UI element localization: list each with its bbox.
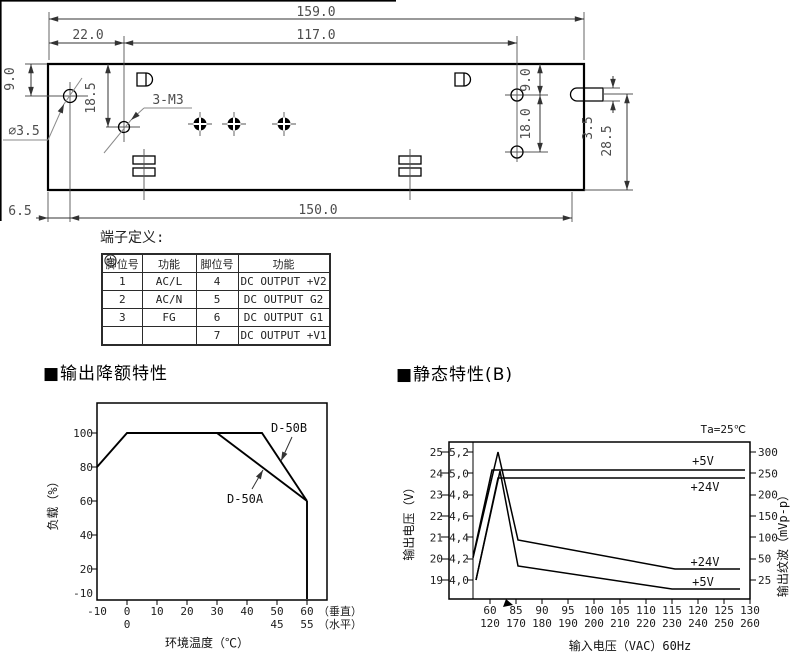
terminal-table: 脚位号 功能 脚位号 功能 1 AC/L 4 DC OUTPUT +V2 2 A… xyxy=(101,253,331,346)
tick-label: 115 xyxy=(662,604,682,617)
pin-number xyxy=(102,327,142,346)
static-x-row1-labels: 60859095100105110115120125130 xyxy=(483,604,760,617)
tick-label: 120 xyxy=(480,617,500,630)
pin-function: FG xyxy=(142,309,196,327)
tick-label: 60 xyxy=(80,495,93,508)
derating-y-tick-labels: 10080604020 xyxy=(73,427,93,576)
table-row: 7 DC OUTPUT +V1 xyxy=(102,327,330,346)
tick-label: 50 xyxy=(758,553,771,566)
x2-under-60: 55 xyxy=(300,618,313,631)
tick-label: 5,0 xyxy=(449,467,469,480)
pin-mark xyxy=(188,112,212,136)
pin-number: 6 xyxy=(196,309,238,327)
derating-axis-ticks xyxy=(91,433,307,605)
col-header: 功能 xyxy=(238,254,330,273)
tick-label: 260 xyxy=(740,617,760,630)
pin-number: 3 xyxy=(102,309,142,327)
tick-label: 50 xyxy=(270,605,283,618)
tick-label: 4,4 xyxy=(449,531,469,544)
tick-label: 85 xyxy=(509,604,522,617)
label-ripple-24v: +24V xyxy=(691,555,720,569)
tick-label: 5,2 xyxy=(449,446,469,459)
tick-label: 4,0 xyxy=(449,574,469,587)
vent-slots-left xyxy=(133,149,155,200)
knockout-right xyxy=(455,73,471,86)
vertical-mount-label: （垂直） xyxy=(318,604,362,618)
pin-function xyxy=(142,327,196,346)
tick-label: 4,8 xyxy=(449,489,469,502)
tick-label: 0 xyxy=(124,605,131,618)
derating-ylabel: 负载（%） xyxy=(46,475,60,530)
label-voltage-5v: +5V xyxy=(692,454,714,468)
tick-label: 110 xyxy=(636,604,656,617)
tick-label: 230 xyxy=(662,617,682,630)
tick-label: 60 xyxy=(300,605,313,618)
label-voltage-24v: +24V xyxy=(691,480,720,494)
static-ylabel-left: 输出电压（V） xyxy=(401,481,416,560)
tick-label: 40 xyxy=(80,529,93,542)
static-y-ripple-labels: 3002502001501005025 xyxy=(758,446,778,587)
table-header-row: 脚位号 功能 脚位号 功能 xyxy=(102,254,330,273)
pin-mark xyxy=(272,112,296,136)
dimension-labels: 159.0 22.0 117.0 9.0 18.5 ∅3.5 3-M3 9.0 … xyxy=(3,5,615,219)
mounting-hole-left xyxy=(25,82,88,222)
tick-label: 130 xyxy=(740,604,760,617)
col-header: 功能 xyxy=(142,254,196,273)
tick-label: 105 xyxy=(610,604,630,617)
dim-m3-from-top: 18.5 xyxy=(84,82,99,113)
tick-label: 24 xyxy=(430,467,444,480)
tick-label: 25 xyxy=(430,446,443,459)
pin-number: 7 xyxy=(196,327,238,346)
static-ylabel-right: 输出纹波（mVp-p） xyxy=(775,489,790,597)
tick-label: 19 xyxy=(430,574,443,587)
ambient-temp-note: Ta=25℃ xyxy=(701,423,746,436)
mounting-tab xyxy=(571,88,604,101)
table-row: 3 FG 6 DC OUTPUT G1 xyxy=(102,309,330,327)
static-y-voltage24-labels: 25242322212019 xyxy=(430,446,444,587)
tick-label: 300 xyxy=(758,446,778,459)
pin-number: 1 xyxy=(102,273,142,291)
tick-label: 20 xyxy=(180,605,193,618)
pin-number: 2 xyxy=(102,291,142,309)
dim-right-hole-from-top: 9.0 xyxy=(519,68,534,91)
tick-label: 20 xyxy=(430,553,443,566)
dim-m3-callout: 3-M3 xyxy=(152,93,183,108)
static-y-voltage5-labels: 5,25,04,84,64,44,24,0 xyxy=(449,446,469,587)
tick-label: 100 xyxy=(73,427,93,440)
pin-function: DC OUTPUT +V2 xyxy=(238,273,330,291)
tick-label: 21 xyxy=(430,531,443,544)
tick-label: 250 xyxy=(714,617,734,630)
pin-number: 5 xyxy=(196,291,238,309)
curve-label-d50a: D-50A xyxy=(227,492,264,506)
x2-under-0: 0 xyxy=(124,618,131,631)
derating-x-tick-labels: -100102030405060 xyxy=(87,605,314,618)
tick-label: 120 xyxy=(688,604,708,617)
section-title-derating: ■输出降额特性 xyxy=(43,359,168,384)
pin-function: AC/L xyxy=(142,273,196,291)
static-chart: +5V +24V +24V +5V 25242322212019 5,25,04… xyxy=(401,423,790,653)
tick-label: 240 xyxy=(688,617,708,630)
table-row: 1 AC/L 4 DC OUTPUT +V2 xyxy=(102,273,330,291)
dim-tab-to-bottom: 28.5 xyxy=(600,125,615,156)
x2-under-50: 45 xyxy=(270,618,283,631)
dim-tab-thickness: 3.5 xyxy=(581,116,596,139)
tick-label: 4,2 xyxy=(449,553,469,566)
m3-hole xyxy=(106,36,140,142)
tick-label: 125 xyxy=(714,604,734,617)
datasheet-page: 159.0 22.0 117.0 9.0 18.5 ∅3.5 3-M3 9.0 … xyxy=(0,0,802,659)
tick-label: 150 xyxy=(758,510,778,523)
tick-label: 180 xyxy=(532,617,552,630)
tick-label: 30 xyxy=(210,605,223,618)
dim-total-width: 159.0 xyxy=(296,5,335,20)
pin-mark xyxy=(222,112,246,136)
d50a-leader-arrow xyxy=(252,470,263,489)
curve-label-d50b: D-50B xyxy=(271,421,307,435)
section-title-static: ■静态特性(B) xyxy=(396,360,513,385)
d50b-leader-arrow xyxy=(281,437,292,461)
static-xlabel: 输入电压（VAC）60Hz xyxy=(569,638,692,653)
tick-label: -10 xyxy=(87,605,107,618)
derating-y-bottom-label: -10 xyxy=(73,587,93,600)
table-row: 2 AC/N 5 DC OUTPUT G2 xyxy=(102,291,330,309)
knockout-left xyxy=(137,73,153,86)
dim-left-hole-from-top: 9.0 xyxy=(3,67,18,90)
tick-label: 60 xyxy=(483,604,496,617)
mounting-holes-right xyxy=(505,36,548,162)
tick-label: 200 xyxy=(584,617,604,630)
derating-x-row2-labels: 0 45 55 xyxy=(124,618,314,631)
tick-label: 4,6 xyxy=(449,510,469,523)
tick-label: 210 xyxy=(610,617,630,630)
curve-d50b xyxy=(97,433,307,501)
dim-right-holes-gap: 18.0 xyxy=(519,108,534,139)
tick-label: 100 xyxy=(758,531,778,544)
pin-function: DC OUTPUT G1 xyxy=(238,309,330,327)
derating-xlabel: 环境温度（℃） xyxy=(165,635,249,650)
pin-number: 4 xyxy=(196,273,238,291)
dim-hole-diameter: ∅3.5 xyxy=(8,124,39,139)
horizontal-mount-label: （水平） xyxy=(318,618,362,631)
tick-label: 22 xyxy=(430,510,443,523)
enclosure-drawing: 159.0 22.0 117.0 9.0 18.5 ∅3.5 3-M3 9.0 … xyxy=(3,5,633,222)
tick-label: 40 xyxy=(240,605,253,618)
pin-function: AC/N xyxy=(142,291,196,309)
curve-d50a xyxy=(217,433,307,501)
tick-label: 10 xyxy=(150,605,163,618)
dim-m3-to-right-hole: 117.0 xyxy=(296,28,335,43)
fg-label: FG xyxy=(162,311,175,324)
tick-label: 25 xyxy=(758,574,771,587)
pin-function: DC OUTPUT +V1 xyxy=(238,327,330,346)
tick-label: 23 xyxy=(430,489,443,502)
dim-hole-span: 150.0 xyxy=(298,203,337,218)
tick-label: 80 xyxy=(80,461,93,474)
vent-slots-right xyxy=(399,149,421,200)
dim-left-to-m3: 22.0 xyxy=(72,28,103,43)
tick-label: 200 xyxy=(758,489,778,502)
tick-label: 90 xyxy=(535,604,548,617)
page-border-line xyxy=(0,0,396,221)
tick-label: 95 xyxy=(561,604,574,617)
static-x-row2-labels: 120170180190200210220230240250260 xyxy=(480,617,760,630)
label-ripple-5v: +5V xyxy=(692,575,714,589)
pin-function: DC OUTPUT G2 xyxy=(238,291,330,309)
col-header: 脚位号 xyxy=(196,254,238,273)
static-curve-labels: +5V +24V +24V +5V xyxy=(691,454,720,589)
tick-label: 20 xyxy=(80,563,93,576)
derating-orientation-labels: （垂直） （水平） xyxy=(318,604,362,631)
tick-label: 170 xyxy=(506,617,526,630)
tick-label: 220 xyxy=(636,617,656,630)
derating-chart: D-50B D-50A 10080604020 -10 -10010203040… xyxy=(46,403,362,650)
tick-label: 250 xyxy=(758,467,778,480)
dim-edge-to-hole: 6.5 xyxy=(8,204,31,219)
terminal-table-title: 端子定义: xyxy=(100,227,164,247)
tick-label: 100 xyxy=(584,604,604,617)
tick-label: 190 xyxy=(558,617,578,630)
pin-marks xyxy=(188,112,296,136)
